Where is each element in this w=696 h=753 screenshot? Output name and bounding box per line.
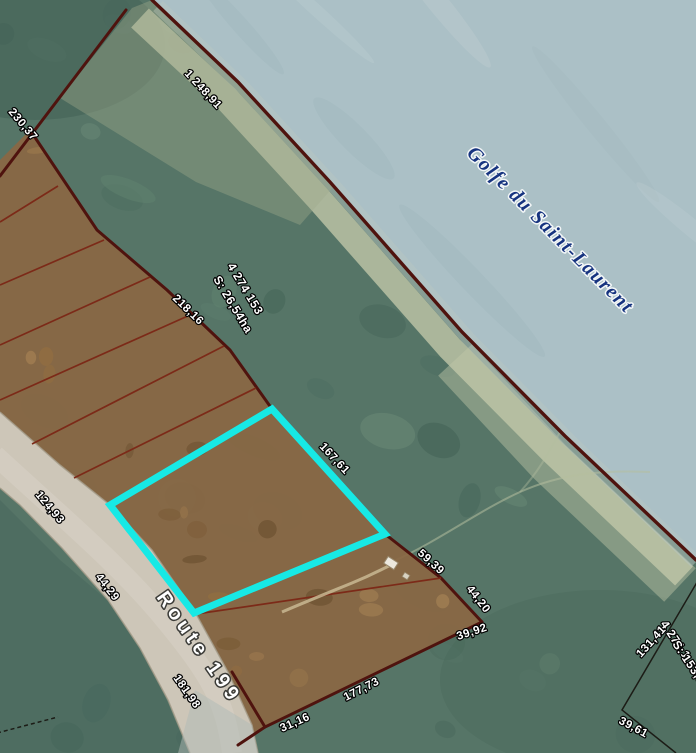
texture-blob xyxy=(216,637,240,650)
satellite-cadastral-map[interactable]: Golfe du Saint-Laurent Route 199 1 248,9… xyxy=(0,0,696,753)
map-canvas[interactable]: Golfe du Saint-Laurent Route 199 1 248,9… xyxy=(0,0,696,753)
